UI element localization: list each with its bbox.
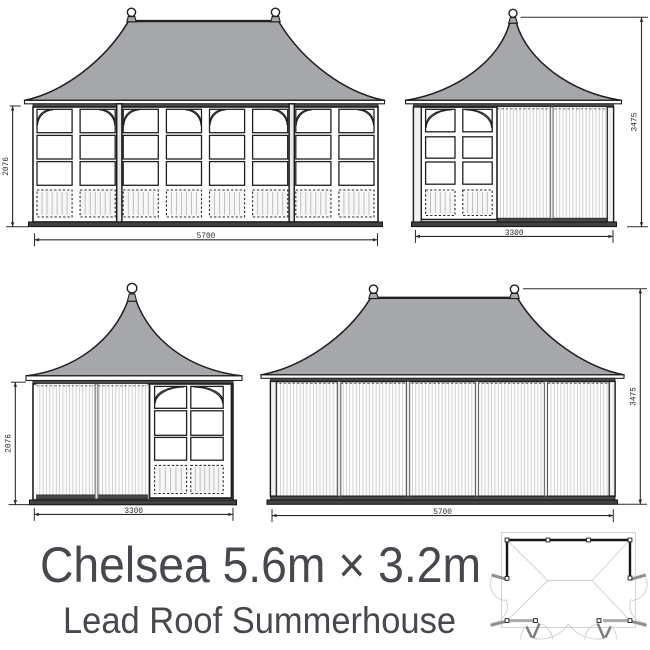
- svg-text:2076: 2076: [6, 434, 14, 453]
- svg-text:3475: 3475: [631, 387, 639, 406]
- svg-text:5700: 5700: [197, 233, 216, 241]
- svg-text:Chelsea 5.6m × 3.2m: Chelsea 5.6m × 3.2m: [40, 537, 481, 593]
- svg-text:Lead Roof Summerhouse: Lead Roof Summerhouse: [63, 600, 456, 641]
- svg-text:3475: 3475: [632, 112, 640, 131]
- svg-text:3300: 3300: [124, 508, 143, 516]
- svg-text:5700: 5700: [433, 509, 452, 517]
- svg-text:3300: 3300: [505, 230, 524, 238]
- svg-text:2076: 2076: [3, 157, 11, 176]
